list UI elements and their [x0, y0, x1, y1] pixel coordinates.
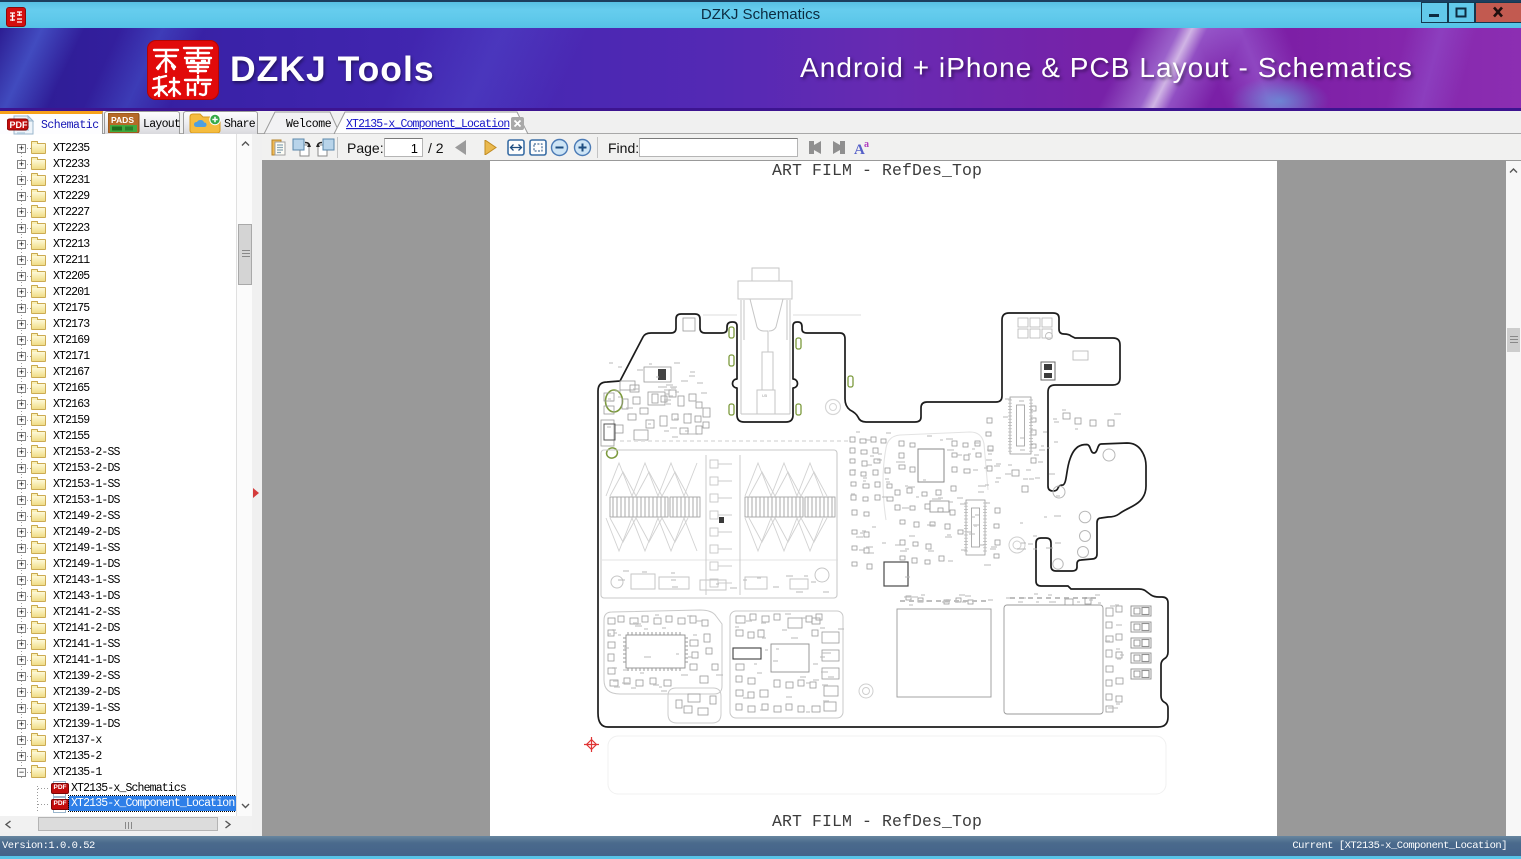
svg-text:PDF: PDF [10, 120, 29, 130]
svg-text:ART FILM - RefDes_Top: ART FILM - RefDes_Top [772, 812, 982, 831]
svg-text:PADS: PADS [111, 115, 134, 125]
svg-text:XT2135-x_Component_Location: XT2135-x_Component_Location [346, 118, 509, 131]
svg-text:a: a [864, 139, 869, 150]
svg-text:ART FILM - RefDes_Top: ART FILM - RefDes_Top [772, 161, 982, 180]
svg-text:Welcome: Welcome [286, 118, 332, 131]
svg-text:U5: U5 [762, 393, 768, 398]
